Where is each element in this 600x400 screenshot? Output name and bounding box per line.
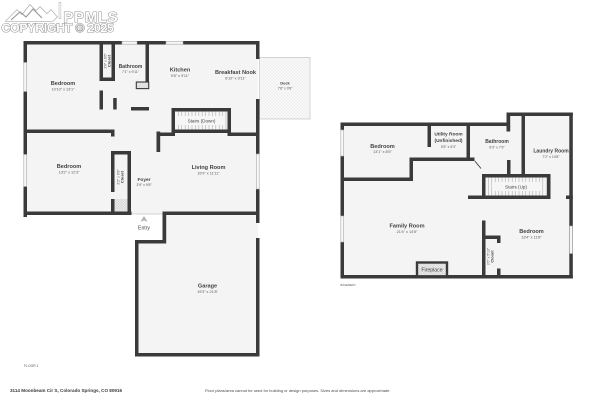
svg-text:BASEMENT: BASEMENT xyxy=(341,283,357,287)
svg-text:COPYRIGHT © 2025: COPYRIGHT © 2025 xyxy=(2,21,115,35)
svg-text:Laundry Room: Laundry Room xyxy=(533,149,569,155)
svg-text:15'9" x 11'11": 15'9" x 11'11" xyxy=(197,171,220,175)
svg-text:Kitchen: Kitchen xyxy=(170,68,191,74)
svg-text:3'9" x 9'8": 3'9" x 9'8" xyxy=(136,183,152,187)
svg-text:13'2" x 12'3": 13'2" x 12'3" xyxy=(59,170,80,174)
svg-text:2'2" x 6'8": 2'2" x 6'8" xyxy=(117,169,121,185)
svg-text:Stairs (Up): Stairs (Up) xyxy=(505,185,527,190)
svg-text:Stairs (Down): Stairs (Down) xyxy=(188,119,216,124)
svg-text:7'8" x 9'8": 7'8" x 9'8" xyxy=(278,86,294,90)
svg-text:21'4" x 14'5": 21'4" x 14'5" xyxy=(397,230,418,234)
svg-text:Family Room: Family Room xyxy=(389,224,424,230)
svg-text:Breakfast Nook: Breakfast Nook xyxy=(215,70,257,76)
svg-text:Floor plans/area cannot be use: Floor plans/area cannot be used for buil… xyxy=(205,388,390,393)
svg-text:7'1" x 9'11": 7'1" x 9'11" xyxy=(122,70,140,74)
svg-text:Bedroom: Bedroom xyxy=(51,81,76,87)
svg-text:3114 Moonbeam Cir S, Colorado: 3114 Moonbeam Cir S, Colorado Springs, C… xyxy=(10,388,123,393)
svg-text:Bedroom: Bedroom xyxy=(57,164,82,170)
svg-text:Utility Room: Utility Room xyxy=(434,131,462,137)
svg-text:19'3" x 21'8": 19'3" x 21'8" xyxy=(197,290,218,294)
svg-text:Bedroom: Bedroom xyxy=(519,229,544,235)
svg-text:Deck: Deck xyxy=(280,81,290,86)
svg-text:Living Room: Living Room xyxy=(192,165,226,171)
svg-text:Fireplace: Fireplace xyxy=(421,268,442,274)
svg-text:13'1" x 8'5": 13'1" x 8'5" xyxy=(373,150,392,154)
svg-text:9'8" x 9'11": 9'8" x 9'11" xyxy=(171,74,190,78)
svg-text:Bathroom: Bathroom xyxy=(485,139,509,145)
svg-text:2'6" x 6'6": 2'6" x 6'6" xyxy=(104,53,108,69)
svg-text:5'5" x 5'3": 5'5" x 5'3" xyxy=(441,145,457,149)
svg-text:13'4" x 11'8": 13'4" x 11'8" xyxy=(521,235,542,239)
svg-text:8'3" x 7'9": 8'3" x 7'9" xyxy=(489,145,505,149)
svg-text:Garage: Garage xyxy=(198,284,217,290)
svg-text:(Unfinished): (Unfinished) xyxy=(435,138,463,144)
svg-text:6'10" x 9'11": 6'10" x 9'11" xyxy=(225,76,246,80)
svg-text:FLOOR 1: FLOOR 1 xyxy=(24,364,39,368)
svg-text:Bedroom: Bedroom xyxy=(370,144,395,150)
svg-text:Entry: Entry xyxy=(138,225,150,231)
svg-text:7'2" x 10'8": 7'2" x 10'8" xyxy=(542,155,560,159)
svg-text:10'10" x 13'1": 10'10" x 13'1" xyxy=(52,87,76,91)
svg-text:2'0" x 5'10": 2'0" x 5'10" xyxy=(487,247,491,265)
